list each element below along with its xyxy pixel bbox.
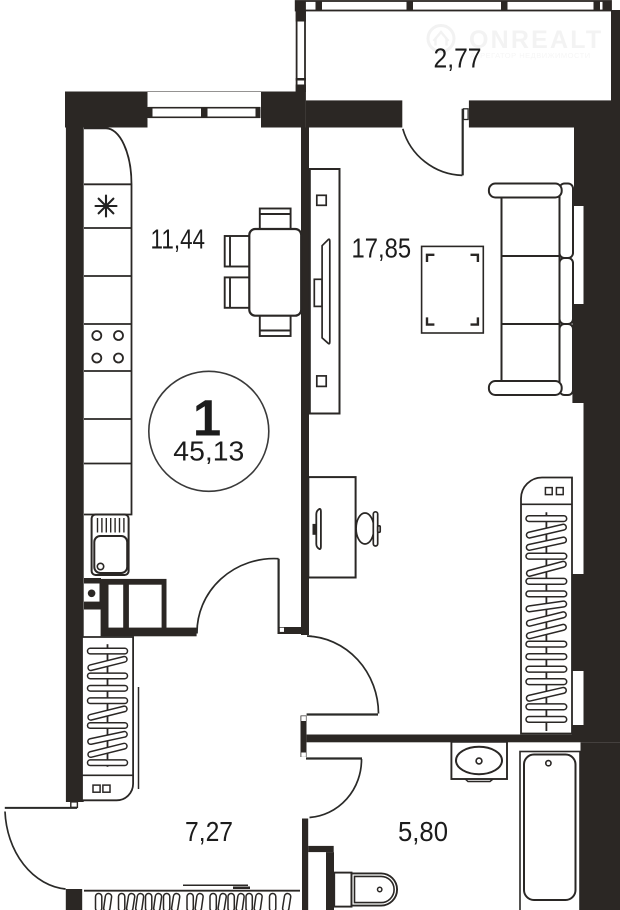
svg-text:5,80: 5,80 <box>398 816 448 847</box>
svg-text:ONREALT: ONREALT <box>469 26 603 54</box>
svg-text:17,85: 17,85 <box>352 233 412 264</box>
svg-text:11,44: 11,44 <box>151 224 206 255</box>
svg-text:2,77: 2,77 <box>434 42 482 73</box>
svg-text:7,27: 7,27 <box>185 816 233 847</box>
svg-text:45,13: 45,13 <box>173 436 244 467</box>
svg-text:АГРЕГАТОР НЕДВИЖИМОСТИ: АГРЕГАТОР НЕДВИЖИМОСТИ <box>470 51 591 60</box>
